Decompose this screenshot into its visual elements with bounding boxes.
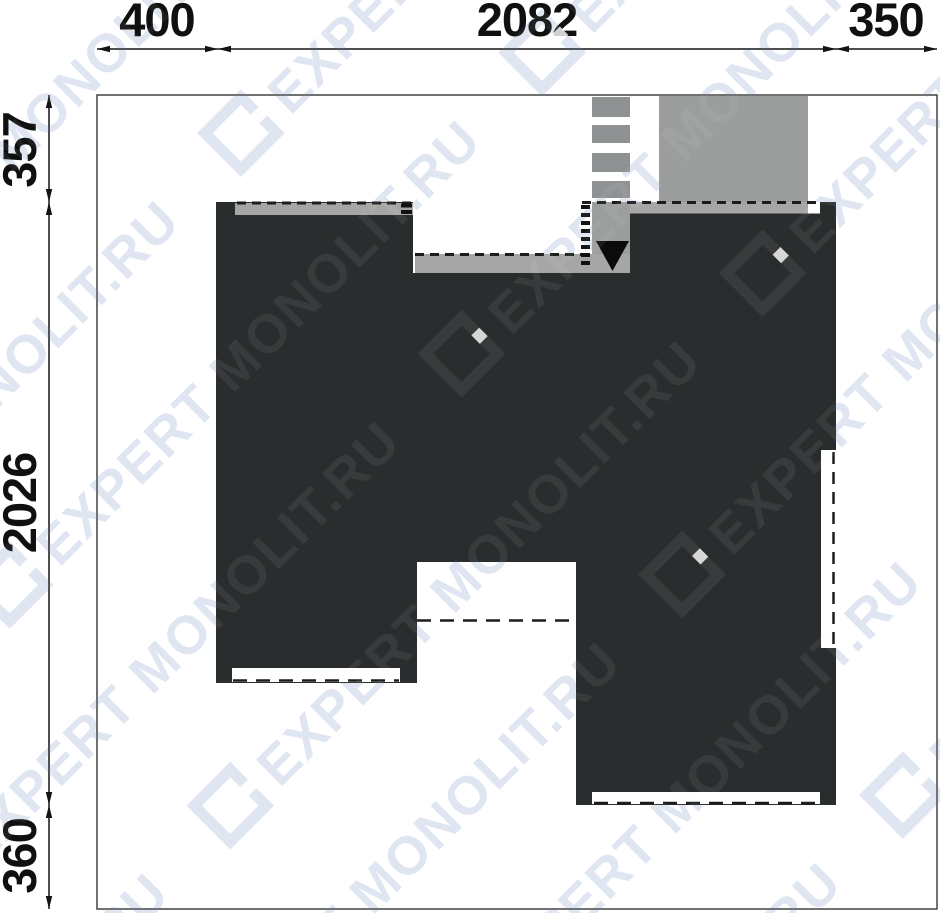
stair-tick bbox=[581, 253, 590, 257]
terrace-strip-left bbox=[235, 203, 413, 215]
stair-tick bbox=[581, 205, 590, 209]
arrowhead bbox=[924, 46, 937, 52]
dim-label-left-bottom: 360 bbox=[0, 818, 46, 893]
stepping-stone bbox=[592, 125, 630, 143]
dim-label-left-middle: 2026 bbox=[0, 453, 46, 554]
arrowhead bbox=[46, 805, 52, 818]
dim-label-top-middle: 2082 bbox=[477, 0, 578, 46]
dim-label-left-top: 357 bbox=[0, 112, 46, 187]
stair-tick bbox=[581, 261, 590, 265]
stepping-stones bbox=[592, 97, 630, 198]
arrowhead bbox=[205, 46, 218, 52]
plan-drawing: 400 2082 350 357 2026 360 bbox=[0, 0, 940, 913]
stepping-stone bbox=[592, 181, 630, 198]
stepping-stone bbox=[592, 97, 630, 117]
driveway-pad bbox=[659, 96, 808, 202]
stair-tick bbox=[581, 229, 590, 233]
arrowhead bbox=[46, 792, 52, 805]
stair-tick bbox=[581, 221, 590, 225]
stepping-stone bbox=[592, 153, 630, 172]
stair-tick bbox=[581, 245, 590, 249]
terrace-end-mark bbox=[401, 204, 412, 208]
arrowhead bbox=[97, 46, 110, 52]
arrowhead bbox=[46, 95, 52, 108]
building-footprint bbox=[216, 202, 836, 805]
arrowhead bbox=[46, 189, 52, 202]
site-plan: EXPERT MONOLIT.RUEXPERT MONOLIT.RUEXPERT… bbox=[0, 0, 940, 913]
arrowhead bbox=[218, 46, 231, 52]
dim-label-top-left: 400 bbox=[119, 0, 194, 46]
arrowhead bbox=[823, 46, 836, 52]
terrace-end-mark bbox=[401, 210, 412, 214]
stair-tick bbox=[581, 237, 590, 241]
arrowhead bbox=[46, 202, 52, 215]
entrance-stair-ticks bbox=[581, 205, 590, 265]
arrowhead bbox=[46, 896, 52, 909]
stair-tick bbox=[581, 213, 590, 217]
porch-strip bbox=[415, 254, 630, 273]
arrowhead bbox=[836, 46, 849, 52]
dim-label-top-right: 350 bbox=[848, 0, 923, 46]
